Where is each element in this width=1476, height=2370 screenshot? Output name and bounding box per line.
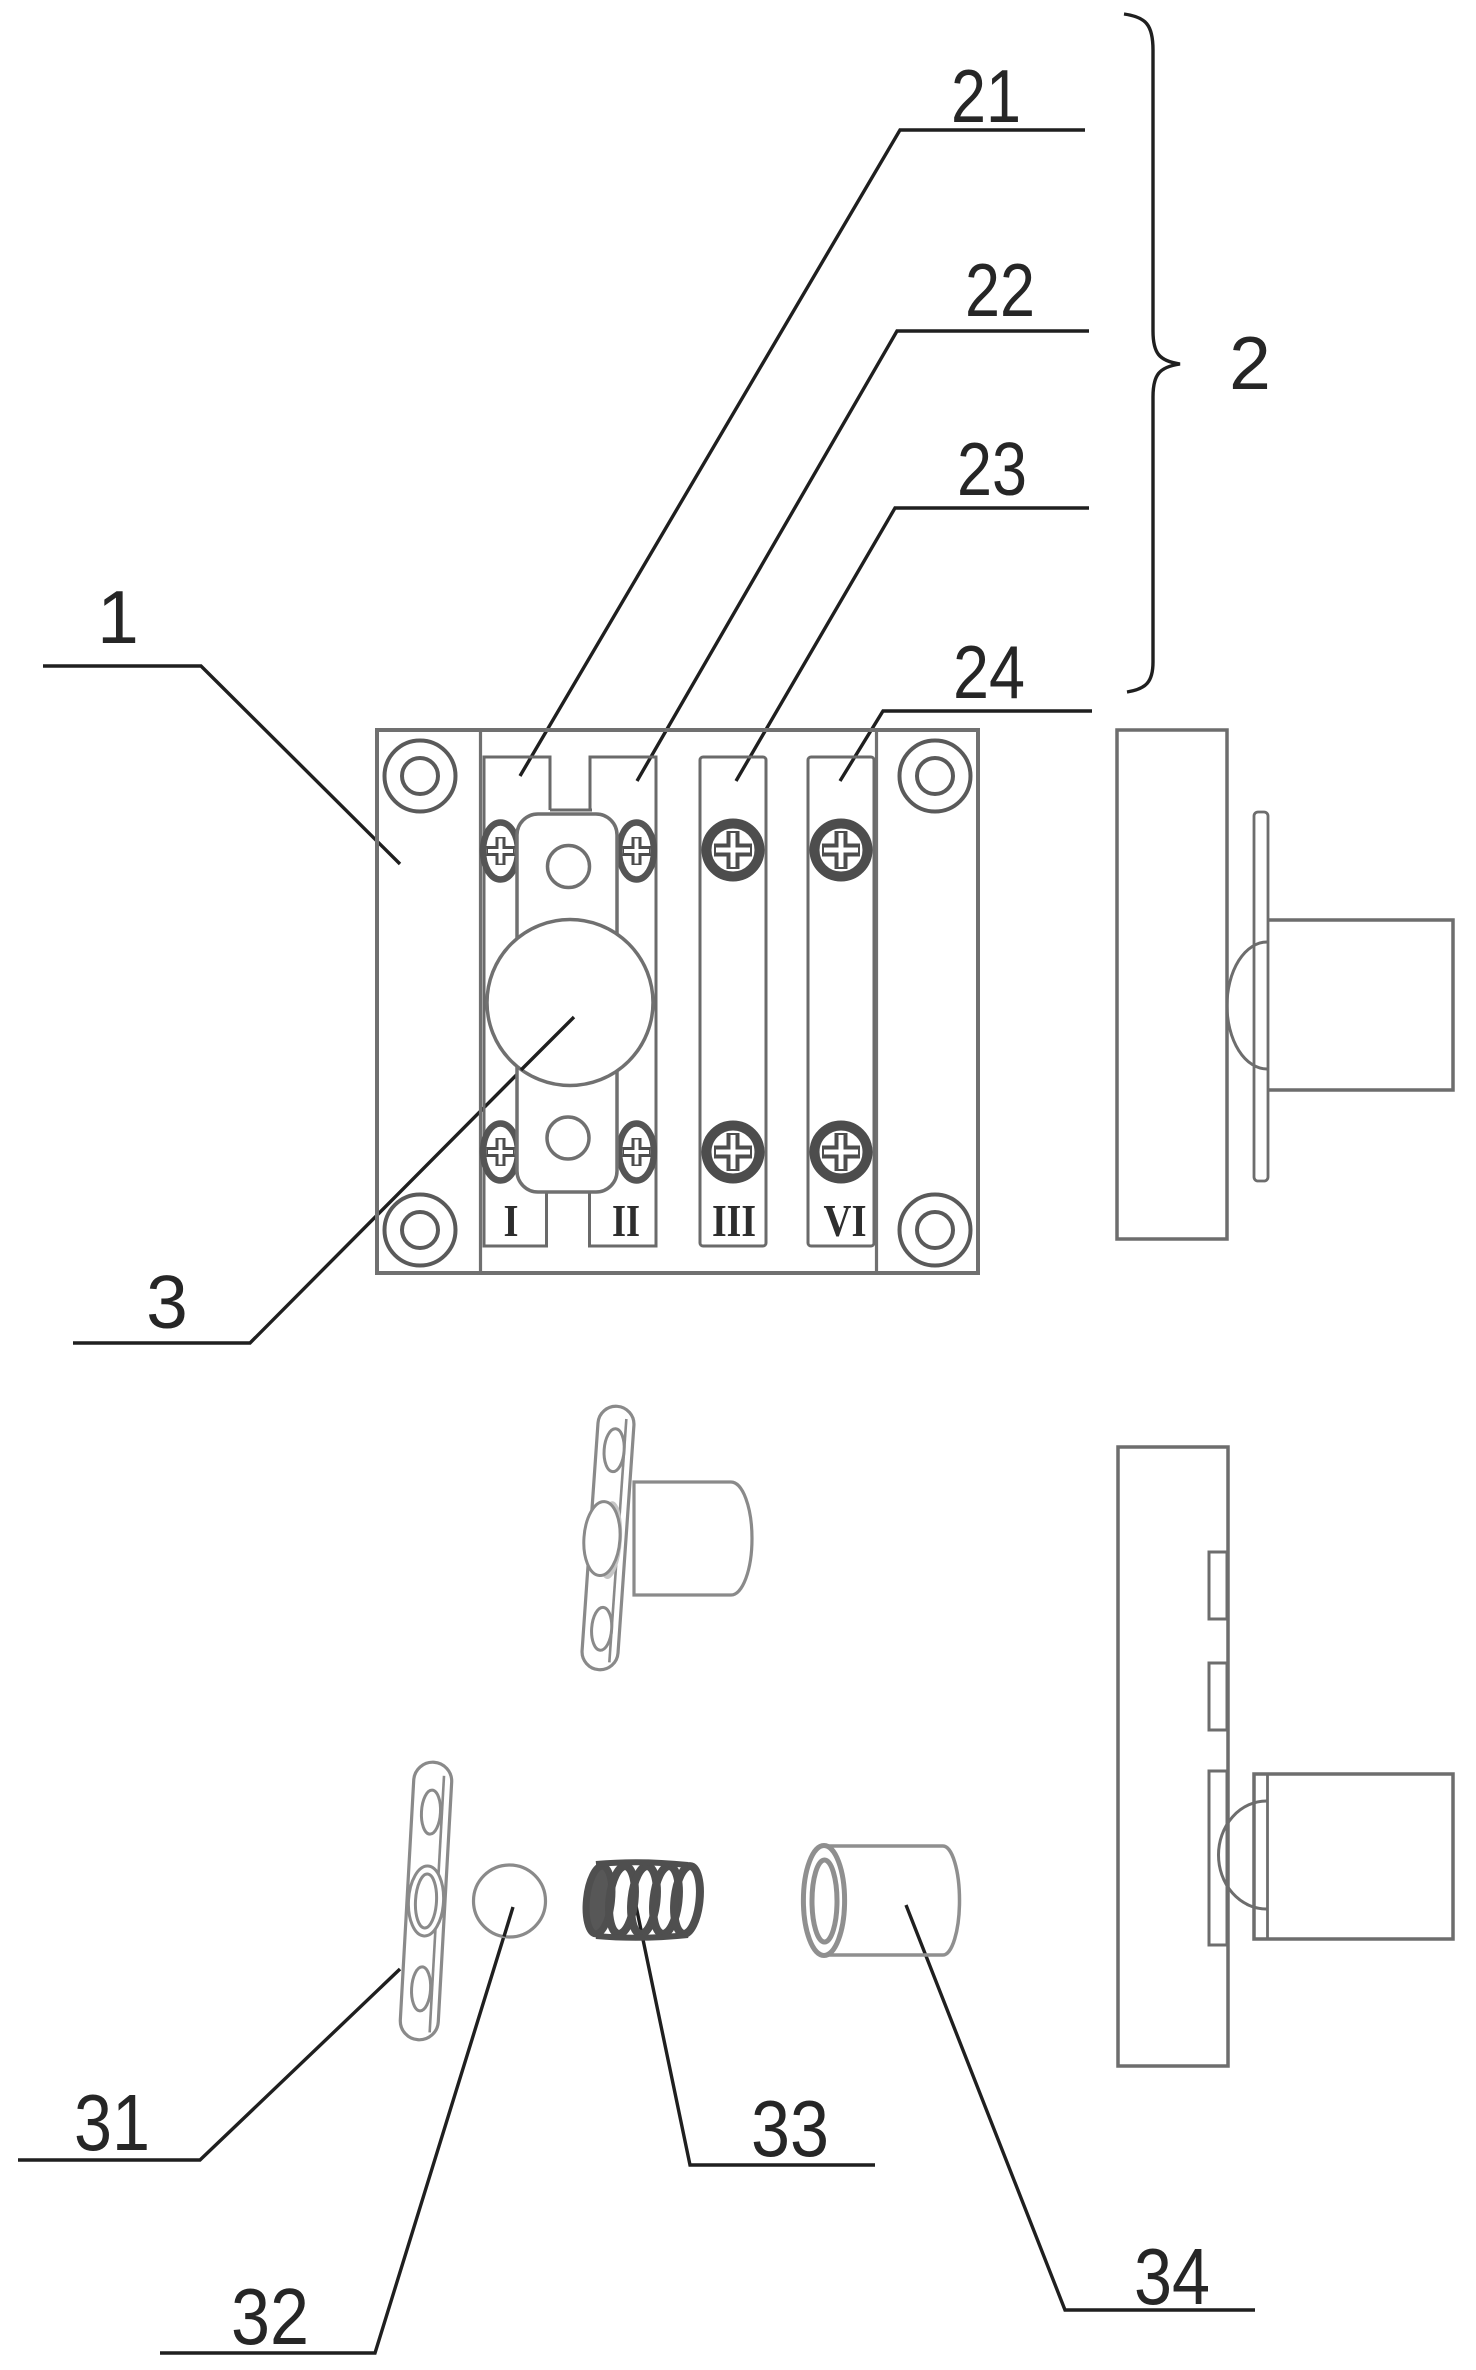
svg-text:34: 34 <box>1134 2232 1210 2321</box>
svg-text:32: 32 <box>231 2272 309 2361</box>
svg-text:3: 3 <box>146 1260 188 1344</box>
svg-text:III: III <box>712 1195 756 1246</box>
svg-text:21: 21 <box>951 54 1021 138</box>
svg-text:23: 23 <box>957 427 1027 511</box>
svg-text:1: 1 <box>97 575 139 659</box>
svg-text:33: 33 <box>751 2084 829 2173</box>
svg-text:II: II <box>612 1195 640 1246</box>
svg-text:VI: VI <box>824 1195 867 1246</box>
svg-text:22: 22 <box>965 248 1035 332</box>
svg-text:2: 2 <box>1229 321 1271 405</box>
svg-text:I: I <box>504 1195 519 1246</box>
svg-text:31: 31 <box>74 2078 150 2167</box>
svg-text:24: 24 <box>953 630 1025 714</box>
